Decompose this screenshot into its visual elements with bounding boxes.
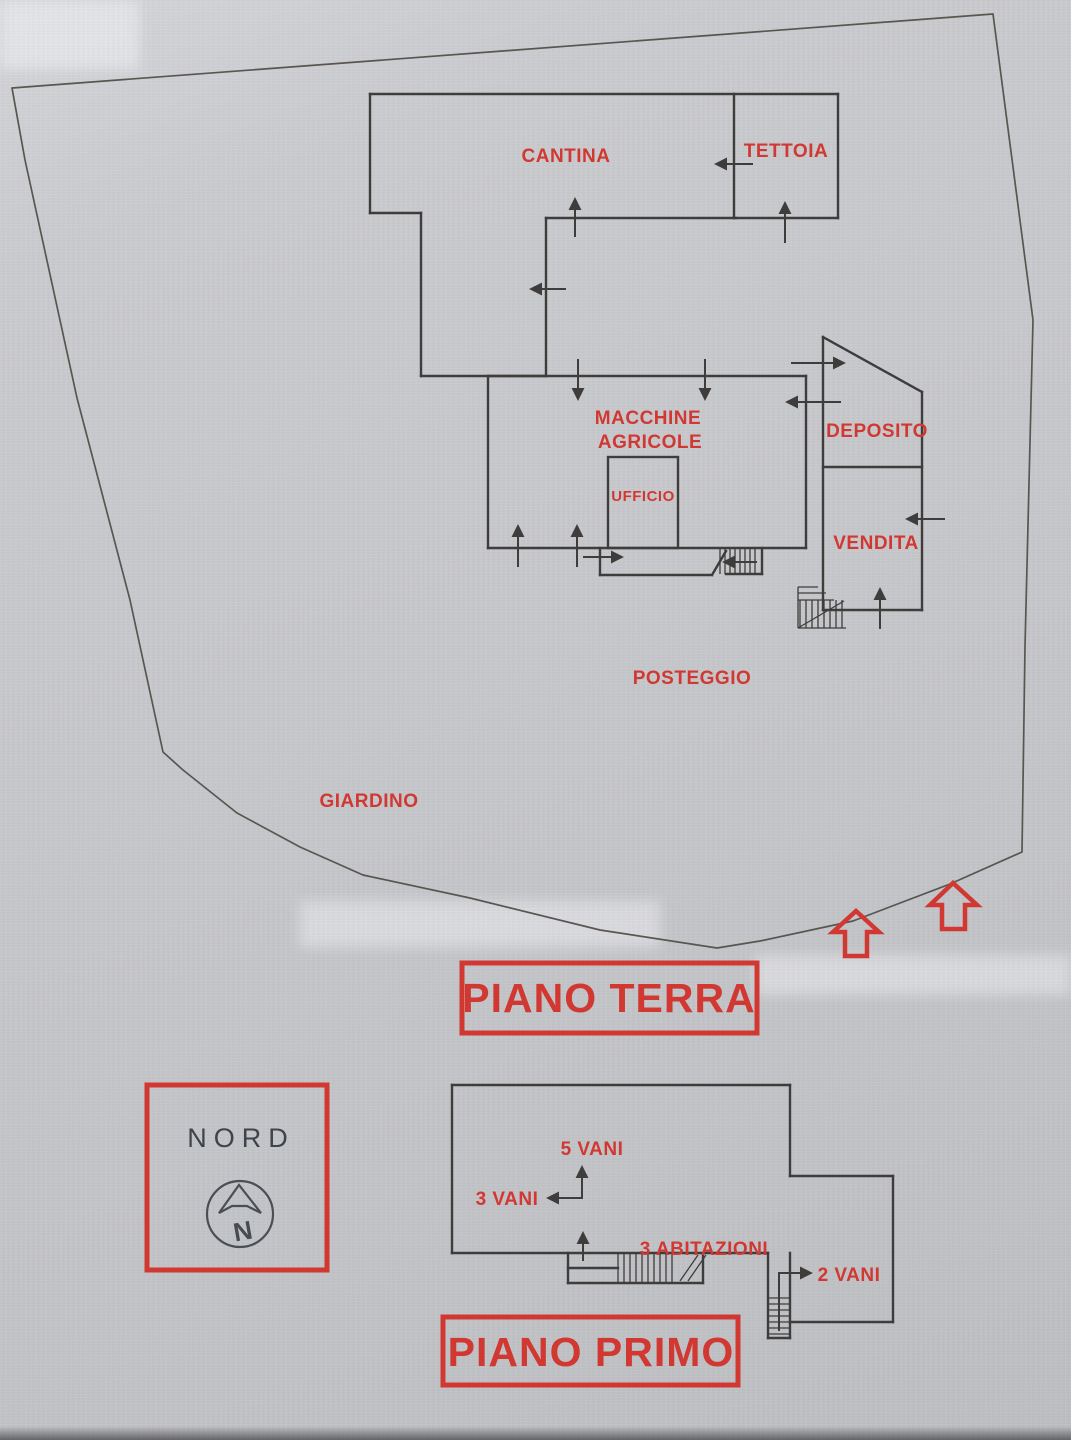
ground-floor-title: PIANO TERRA <box>462 975 755 1021</box>
room-label-cantina: CANTINA <box>522 146 611 167</box>
room-label-macchine-agricole-line1: MACCHINE <box>595 408 701 429</box>
first-floor-plan: 5 VANI 3 VANI 3 ABITAZIONI 2 VANI <box>452 1085 893 1338</box>
room-label-ufficio: UFFICIO <box>611 488 675 505</box>
north-compass-icon: N <box>207 1181 273 1247</box>
area-label-giardino: GIARDINO <box>320 791 419 812</box>
ground-floor-plan: CANTINA TETTOIA MACCHINE AGRICOLE UFFICI… <box>320 94 946 812</box>
first-floor-title: PIANO PRIMO <box>448 1329 735 1375</box>
door-arrows <box>518 164 945 629</box>
annotation-3-abitazioni: 3 ABITAZIONI <box>640 1239 768 1260</box>
annotation-2-vani: 2 VANI <box>818 1265 881 1286</box>
room-label-tettoia: TETTOIA <box>744 141 828 162</box>
entrance-arrow-icon <box>833 911 879 956</box>
entrance-arrow-icon <box>930 883 977 929</box>
piano-terra-title-box: PIANO TERRA <box>462 963 757 1033</box>
cantina-building-walls <box>370 94 838 376</box>
scan-bottom-shadow <box>0 1426 1071 1440</box>
area-label-posteggio: POSTEGGIO <box>633 668 752 689</box>
room-label-macchine-agricole-line2: AGRICOLE <box>598 432 702 453</box>
annotation-3-vani: 3 VANI <box>476 1189 539 1210</box>
room-label-deposito: DEPOSITO <box>826 421 928 442</box>
macchine-agricole-walls <box>488 376 806 548</box>
scanned-floor-plan-page: CANTINA TETTOIA MACCHINE AGRICOLE UFFICI… <box>0 0 1071 1440</box>
compass-letter: N <box>231 1215 255 1248</box>
north-label: NORD <box>187 1123 295 1153</box>
north-indicator: NORD N <box>147 1085 327 1270</box>
piano-primo-title-box: PIANO PRIMO <box>443 1317 738 1385</box>
annotation-5-vani: 5 VANI <box>561 1139 624 1160</box>
deposito-vendita-walls <box>823 337 922 610</box>
room-label-vendita: VENDITA <box>833 533 918 554</box>
